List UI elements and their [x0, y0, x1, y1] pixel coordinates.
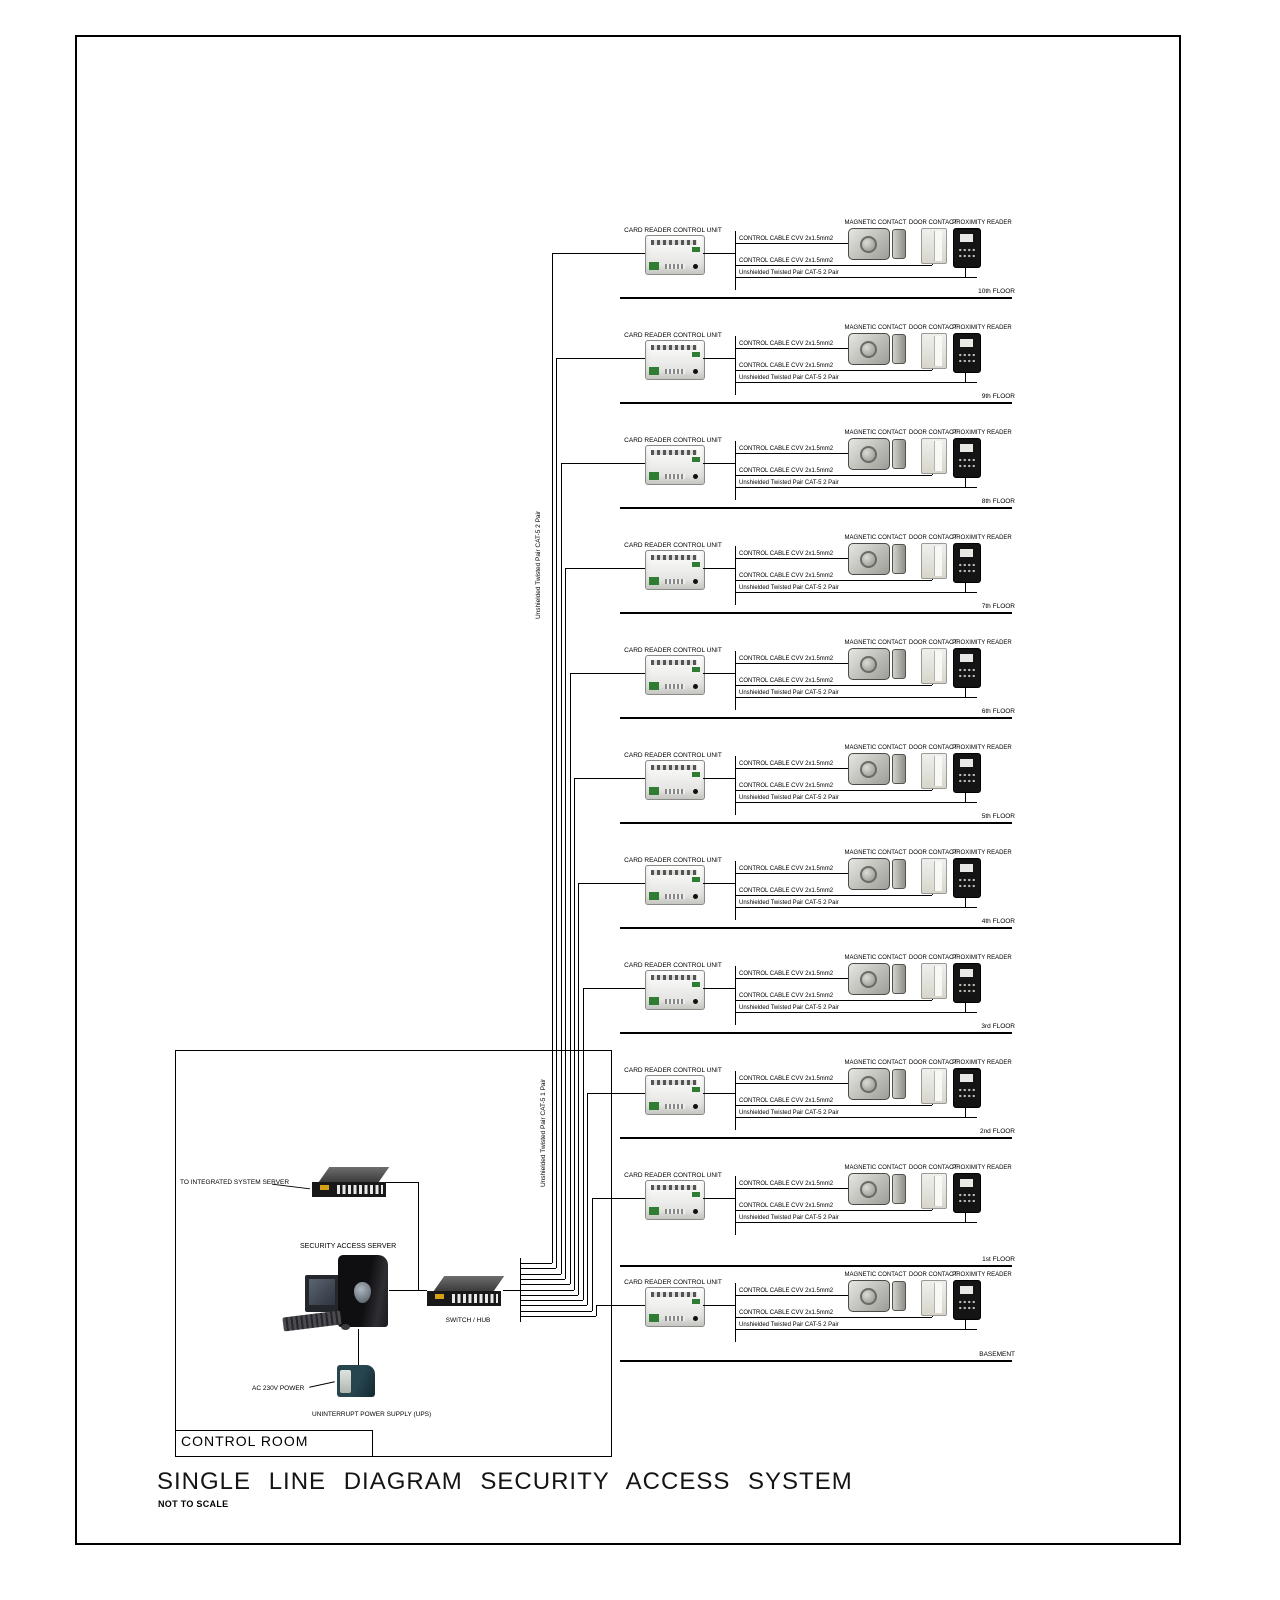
monitor-icon [305, 1275, 339, 1312]
magnetic-contact-device [848, 1068, 890, 1100]
magnetic-contact-armature [892, 544, 906, 574]
cable-label: CONTROL CABLE CVV 2x1.5mm2 [739, 362, 833, 370]
wire [703, 1093, 735, 1094]
floor-separator [620, 402, 1012, 404]
mouse-icon [341, 1324, 350, 1330]
cable-label: Unshielded Twisted Pair CAT-5 2 Pair [739, 1214, 839, 1222]
wire [735, 558, 848, 559]
wire [735, 382, 977, 383]
terminal-block [692, 457, 700, 462]
wire [735, 1222, 977, 1223]
cable-label: CONTROL CABLE CVV 2x1.5mm2 [739, 1309, 833, 1317]
door-contact-device [921, 1280, 947, 1316]
wire [735, 277, 977, 278]
card-reader-control-unit-label: CARD READER CONTROL UNIT [617, 1279, 729, 1287]
magnetic-contact-device [848, 753, 890, 785]
wire [735, 1329, 977, 1330]
wire [735, 697, 977, 698]
terminal-block [692, 1299, 700, 1304]
wire [735, 861, 736, 920]
cable-label: CONTROL CABLE CVV 2x1.5mm2 [739, 1097, 833, 1105]
door-contact-device [921, 963, 947, 999]
cable-label: CONTROL CABLE CVV 2x1.5mm2 [739, 572, 833, 580]
diagram-page: CARD READER CONTROL UNIT CONTROL CABLE C… [0, 0, 1280, 1600]
switch-top-face [319, 1167, 390, 1182]
door-contact-device [921, 648, 947, 684]
proximity-reader-label: PROXIMITY READER [938, 639, 1026, 647]
connector-slot [665, 1104, 685, 1109]
magnetic-contact-device [848, 963, 890, 995]
cable-label: CONTROL CABLE CVV 2x1.5mm2 [739, 550, 833, 558]
security-access-server-label: SECURITY ACCESS SERVER [300, 1243, 396, 1251]
card-reader-control-unit [645, 340, 705, 380]
proximity-reader-device [953, 1173, 981, 1213]
floor-separator [620, 1137, 1012, 1139]
wire [735, 790, 932, 791]
proximity-reader-device [953, 543, 981, 583]
wire [735, 1210, 932, 1211]
cable-label: CONTROL CABLE CVV 2x1.5mm2 [739, 340, 833, 348]
door-contact-device [921, 333, 947, 369]
card-reader-control-unit [645, 1075, 705, 1115]
cable-label: Unshielded Twisted Pair CAT-5 2 Pair [739, 899, 839, 907]
floor-separator [620, 927, 1012, 929]
wire [735, 895, 932, 896]
connector-slot [665, 1209, 685, 1214]
keyboard-icon [282, 1311, 341, 1332]
cable-label: CONTROL CABLE CVV 2x1.5mm2 [739, 445, 833, 453]
magnetic-contact-armature [892, 859, 906, 889]
card-reader-control-unit [645, 655, 705, 695]
proximity-reader-device [953, 858, 981, 898]
cable-label: CONTROL CABLE CVV 2x1.5mm2 [739, 1075, 833, 1083]
magnetic-contact-armature [892, 229, 906, 259]
magnetic-contact-armature [892, 1069, 906, 1099]
wire [565, 568, 645, 569]
proximity-reader-label: PROXIMITY READER [938, 534, 1026, 542]
cable-label: Unshielded Twisted Pair CAT-5 2 Pair [739, 584, 839, 592]
floor-label: 6th FLOOR [915, 708, 1015, 715]
wire [735, 1071, 736, 1130]
wire [735, 336, 736, 395]
floor-separator [620, 507, 1012, 509]
card-reader-control-unit [645, 865, 705, 905]
proximity-reader-label: PROXIMITY READER [938, 744, 1026, 752]
connector-slot [665, 684, 685, 689]
door-contact-device [921, 858, 947, 894]
cable-label: CONTROL CABLE CVV 2x1.5mm2 [739, 1287, 833, 1295]
wire [583, 988, 645, 989]
wire [570, 673, 645, 674]
wire [735, 265, 932, 266]
buzzer-dot [693, 474, 698, 479]
magnetic-contact-armature [892, 1281, 906, 1311]
card-reader-control-unit [645, 970, 705, 1010]
terminal-block [692, 562, 700, 567]
cable-label: Unshielded Twisted Pair CAT-5 2 Pair [739, 689, 839, 697]
magnetic-contact-device [848, 228, 890, 260]
terminal-block [692, 877, 700, 882]
wire [552, 253, 645, 254]
connector-slot [665, 1316, 685, 1321]
terminal-block [692, 1192, 700, 1197]
cable-label: CONTROL CABLE CVV 2x1.5mm2 [739, 970, 833, 978]
wire [735, 1105, 932, 1106]
wire [735, 1188, 848, 1189]
switch-hub [427, 1272, 505, 1312]
switch-top-face [434, 1276, 505, 1291]
cable-label: Unshielded Twisted Pair CAT-5 2 Pair [739, 374, 839, 382]
ups-device [337, 1365, 375, 1397]
magnetic-contact-armature [892, 439, 906, 469]
wire [561, 463, 645, 464]
cable-label: CONTROL CABLE CVV 2x1.5mm2 [739, 782, 833, 790]
connector-slot [665, 999, 685, 1004]
magnetic-contact-device [848, 543, 890, 575]
buzzer-dot [693, 369, 698, 374]
terminal-block [692, 352, 700, 357]
wire [703, 1198, 735, 1199]
wire [735, 243, 848, 244]
floor-label: 3rd FLOOR [915, 1023, 1015, 1030]
diagram-title: SINGLE LINE DIAGRAM SECURITY ACCESS SYST… [157, 1468, 853, 1496]
terminal-block [692, 772, 700, 777]
magnetic-contact-armature [892, 754, 906, 784]
wire [703, 568, 735, 569]
wire [703, 778, 735, 779]
cable-label: CONTROL CABLE CVV 2x1.5mm2 [739, 992, 833, 1000]
magnetic-contact-device [848, 1173, 890, 1205]
cable-label: CONTROL CABLE CVV 2x1.5mm2 [739, 677, 833, 685]
door-contact-device [921, 1068, 947, 1104]
tower-icon [338, 1255, 388, 1327]
wire [735, 873, 848, 874]
wire [735, 441, 736, 500]
magnetic-contact-device [848, 438, 890, 470]
wire [735, 768, 848, 769]
floor-separator [620, 1360, 1012, 1362]
terminal-block [692, 247, 700, 252]
card-reader-control-unit-label: CARD READER CONTROL UNIT [617, 332, 729, 340]
wire [735, 370, 932, 371]
card-reader-control-unit-label: CARD READER CONTROL UNIT [617, 542, 729, 550]
connector-slot [665, 894, 685, 899]
proximity-reader-device [953, 1068, 981, 1108]
proximity-reader-device [953, 753, 981, 793]
wire [735, 756, 736, 815]
proximity-reader-label: PROXIMITY READER [938, 219, 1026, 227]
card-reader-control-unit-label: CARD READER CONTROL UNIT [617, 647, 729, 655]
floor-separator [620, 612, 1012, 614]
floor-label: 5th FLOOR [915, 813, 1015, 820]
wire [703, 673, 735, 674]
wire [703, 988, 735, 989]
security-access-server [283, 1253, 389, 1333]
wire [703, 883, 735, 884]
door-contact-device [921, 438, 947, 474]
cable-label: Unshielded Twisted Pair CAT-5 2 Pair [739, 794, 839, 802]
buzzer-dot [693, 579, 698, 584]
door-contact-device [921, 228, 947, 264]
card-reader-control-unit [645, 445, 705, 485]
card-reader-control-unit [645, 760, 705, 800]
proximity-reader-label: PROXIMITY READER [938, 954, 1026, 962]
card-reader-control-unit [645, 1287, 705, 1327]
cable-label: CONTROL CABLE CVV 2x1.5mm2 [739, 655, 833, 663]
control-room-box [175, 1050, 612, 1457]
buzzer-dot [693, 999, 698, 1004]
wire [556, 358, 645, 359]
wire [735, 1000, 932, 1001]
wire [735, 580, 932, 581]
wire [735, 651, 736, 710]
magnetic-contact-armature [892, 334, 906, 364]
buzzer-dot [693, 1316, 698, 1321]
cable-label: Unshielded Twisted Pair CAT-5 2 Pair [739, 1004, 839, 1012]
wire [735, 592, 977, 593]
ac-power-label: AC 230V POWER [252, 1385, 304, 1393]
cable-label: CONTROL CABLE CVV 2x1.5mm2 [739, 1180, 833, 1188]
cable-label: CONTROL CABLE CVV 2x1.5mm2 [739, 760, 833, 768]
riser-label-upper: Unshielded Twisted Pair CAT-5 2 Pair [535, 511, 542, 619]
buzzer-dot [693, 894, 698, 899]
proximity-reader-device [953, 438, 981, 478]
proximity-reader-device [953, 228, 981, 268]
ups-label: UNINTERRUPT POWER SUPPLY (UPS) [312, 1411, 431, 1419]
magnetic-contact-armature [892, 649, 906, 679]
wire [703, 1305, 735, 1306]
wire [735, 802, 977, 803]
card-reader-control-unit-label: CARD READER CONTROL UNIT [617, 437, 729, 445]
card-reader-control-unit-label: CARD READER CONTROL UNIT [617, 1172, 729, 1180]
connector-slot [665, 579, 685, 584]
switch-ports [312, 1182, 386, 1197]
connector-slot [665, 789, 685, 794]
wire [735, 1295, 848, 1296]
wire [735, 475, 932, 476]
diagram-subtitle: NOT TO SCALE [158, 1499, 228, 1509]
cable-label: Unshielded Twisted Pair CAT-5 2 Pair [739, 479, 839, 487]
wire [703, 358, 735, 359]
wire [703, 463, 735, 464]
cable-label: CONTROL CABLE CVV 2x1.5mm2 [739, 865, 833, 873]
floor-separator [620, 1032, 1012, 1034]
wire [735, 1176, 736, 1235]
magnetic-contact-device [848, 333, 890, 365]
card-reader-control-unit-label: CARD READER CONTROL UNIT [617, 962, 729, 970]
proximity-reader-label: PROXIMITY READER [938, 1271, 1026, 1279]
wire [735, 487, 977, 488]
door-contact-device [921, 753, 947, 789]
connector-slot [665, 474, 685, 479]
floor-label: BASEMENT [915, 1351, 1015, 1358]
cable-label: Unshielded Twisted Pair CAT-5 2 Pair [739, 1321, 839, 1329]
proximity-reader-label: PROXIMITY READER [938, 1164, 1026, 1172]
switch-hub-label: SWITCH / HUB [432, 1317, 504, 1325]
door-contact-device [921, 1173, 947, 1209]
floor-separator [620, 717, 1012, 719]
proximity-reader-label: PROXIMITY READER [938, 324, 1026, 332]
wire [735, 1283, 736, 1342]
floor-label: 9th FLOOR [915, 393, 1015, 400]
cable-label: CONTROL CABLE CVV 2x1.5mm2 [739, 1202, 833, 1210]
switch-ports [427, 1291, 501, 1306]
wire [703, 253, 735, 254]
card-reader-control-unit [645, 235, 705, 275]
buzzer-dot [693, 1104, 698, 1109]
wire [735, 1317, 932, 1318]
wire [735, 1117, 977, 1118]
proximity-reader-label: PROXIMITY READER [938, 429, 1026, 437]
floor-label: 10th FLOOR [915, 288, 1015, 295]
wire [574, 778, 645, 779]
floor-label: 1st FLOOR [915, 1256, 1015, 1263]
magnetic-contact-device [848, 648, 890, 680]
card-reader-control-unit-label: CARD READER CONTROL UNIT [617, 1067, 729, 1075]
cable-label: CONTROL CABLE CVV 2x1.5mm2 [739, 235, 833, 243]
buzzer-dot [693, 1209, 698, 1214]
floor-separator [620, 822, 1012, 824]
proximity-reader-device [953, 648, 981, 688]
floor-label: 4th FLOOR [915, 918, 1015, 925]
card-reader-control-unit [645, 1180, 705, 1220]
magnetic-contact-device [848, 1280, 890, 1312]
proximity-reader-device [953, 963, 981, 1003]
magnetic-contact-armature [892, 1174, 906, 1204]
proximity-reader-label: PROXIMITY READER [938, 1059, 1026, 1067]
proximity-reader-device [953, 1280, 981, 1320]
wire [735, 1083, 848, 1084]
floor-label: 7th FLOOR [915, 603, 1015, 610]
terminal-block [692, 982, 700, 987]
terminal-block [692, 667, 700, 672]
wire [735, 546, 736, 605]
wire [735, 453, 848, 454]
wire [735, 907, 977, 908]
connector-slot [665, 369, 685, 374]
cable-label: CONTROL CABLE CVV 2x1.5mm2 [739, 257, 833, 265]
connector-slot [665, 264, 685, 269]
wire [735, 663, 848, 664]
proximity-reader-label: PROXIMITY READER [938, 849, 1026, 857]
buzzer-dot [693, 684, 698, 689]
magnetic-contact-device [848, 858, 890, 890]
wire [735, 685, 932, 686]
door-contact-device [921, 543, 947, 579]
floor-separator [620, 297, 1012, 299]
cable-label: CONTROL CABLE CVV 2x1.5mm2 [739, 887, 833, 895]
cable-label: Unshielded Twisted Pair CAT-5 2 Pair [739, 269, 839, 277]
card-reader-control-unit-label: CARD READER CONTROL UNIT [617, 857, 729, 865]
buzzer-dot [693, 789, 698, 794]
floor-label: 8th FLOOR [915, 498, 1015, 505]
card-reader-control-unit-label: CARD READER CONTROL UNIT [617, 752, 729, 760]
cable-label: CONTROL CABLE CVV 2x1.5mm2 [739, 467, 833, 475]
buzzer-dot [693, 264, 698, 269]
card-reader-control-unit-label: CARD READER CONTROL UNIT [617, 227, 729, 235]
wire [735, 966, 736, 1025]
card-reader-control-unit [645, 550, 705, 590]
wire [735, 231, 736, 290]
wire [735, 348, 848, 349]
control-room-label: CONTROL ROOM [181, 1433, 308, 1449]
wire [735, 1012, 977, 1013]
terminal-block [692, 1087, 700, 1092]
floor-label: 2nd FLOOR [915, 1128, 1015, 1135]
proximity-reader-device [953, 333, 981, 373]
wire [578, 883, 645, 884]
wire [735, 978, 848, 979]
cable-label: Unshielded Twisted Pair CAT-5 2 Pair [739, 1109, 839, 1117]
magnetic-contact-armature [892, 964, 906, 994]
integrated-network-switch [312, 1163, 390, 1203]
